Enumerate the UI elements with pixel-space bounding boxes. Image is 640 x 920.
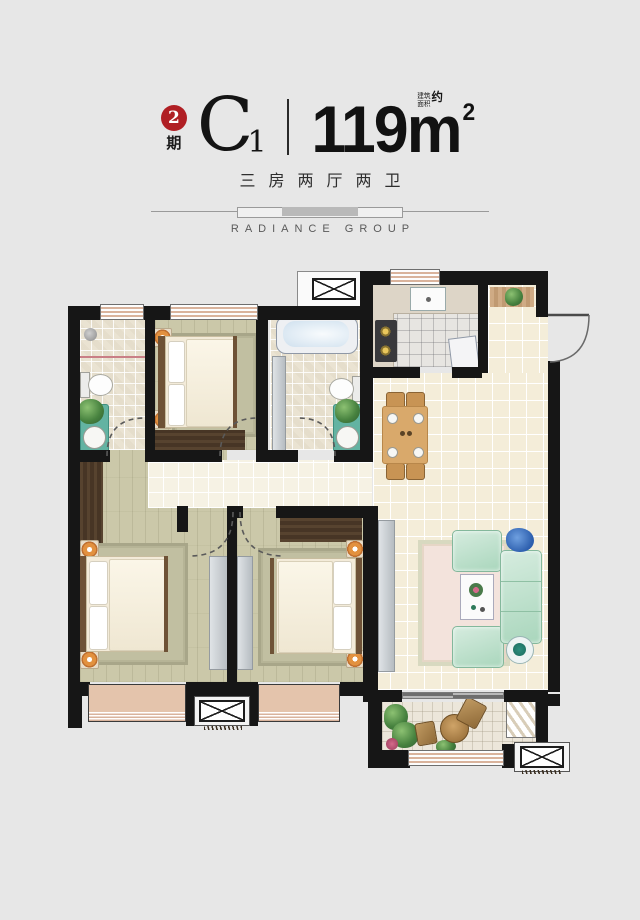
wall: [256, 450, 270, 462]
floorplan: [0, 0, 640, 920]
wall: [227, 506, 237, 692]
flower-icon: [386, 738, 398, 750]
bed3-pillow: [333, 561, 352, 605]
wall: [256, 312, 268, 452]
plate-icon: [413, 447, 424, 458]
sink2: [336, 426, 359, 449]
bed2-footboard: [233, 336, 237, 428]
plate-icon: [413, 413, 424, 424]
wall: [478, 285, 488, 373]
nightstand-lamp-icon: [80, 650, 99, 669]
balcony-cabinet: [506, 698, 536, 738]
wall: [276, 506, 372, 518]
toilet1-bowl: [88, 374, 113, 396]
window: [100, 304, 144, 320]
table-centerpiece: [400, 431, 405, 436]
wall: [548, 361, 560, 692]
hatch-marks: [522, 770, 562, 774]
wall: [145, 312, 155, 452]
bath2-cabinet: [272, 356, 286, 452]
bedroom2-dresser: [155, 430, 245, 450]
sofa-cushion-seam: [501, 611, 541, 612]
armchair: [452, 530, 502, 572]
living-tv-cabinet: [378, 520, 395, 672]
wall: [536, 694, 560, 706]
floorplan-page: { "header": { "phase_number": "2", "phas…: [0, 0, 640, 920]
bathtub: [276, 316, 358, 354]
ac-platform-x-icon: [520, 746, 564, 768]
master-tv-cabinet: [209, 556, 229, 670]
plate-icon: [387, 447, 398, 458]
sliding-door: [402, 692, 504, 699]
sofa-cushion-seam: [501, 581, 541, 582]
ac-platform-x-icon: [199, 700, 245, 722]
nightstand-lamp-icon: [346, 540, 364, 558]
cup-icon: [480, 607, 485, 612]
dining-table: [382, 406, 428, 464]
toilet2-bowl: [329, 378, 354, 400]
master-bed-pillow: [89, 561, 108, 605]
wall: [362, 367, 420, 378]
wall: [145, 450, 222, 462]
wall: [68, 450, 110, 462]
kitchen-sink: [410, 287, 446, 311]
bed3-footboard: [270, 558, 274, 654]
window-sill: [259, 712, 339, 721]
table-centerpiece: [407, 431, 412, 436]
window: [170, 304, 258, 320]
flowers-icon: [469, 583, 483, 597]
bay-window: [258, 684, 340, 722]
plant-icon: [513, 643, 526, 656]
plate-icon: [387, 413, 398, 424]
wall: [177, 506, 188, 532]
cup-icon: [471, 605, 476, 610]
bed3-duvet: [278, 561, 333, 653]
master-bed-duvet: [109, 559, 166, 651]
flue-x-icon: [312, 278, 356, 300]
wall: [363, 506, 378, 692]
blue-plant-icon: [506, 528, 534, 552]
window: [390, 269, 440, 285]
master-bed-footboard: [164, 556, 168, 652]
coffee-table: [460, 574, 494, 620]
shower-head-icon: [84, 328, 97, 341]
master-bed-pillow: [89, 606, 108, 650]
wall: [334, 450, 373, 462]
sofa: [500, 550, 542, 644]
hatch-marks: [204, 726, 242, 730]
bed2-pillow: [168, 384, 185, 426]
window-sill: [89, 712, 185, 721]
balcony-railing: [408, 750, 504, 766]
dining-chair: [386, 463, 405, 480]
bed2-headboard: [158, 336, 165, 428]
corridor-floor: [148, 460, 372, 508]
sliding-door-panel: [403, 693, 453, 696]
bed3-pillow: [333, 606, 352, 650]
balcony-chair: [414, 720, 438, 746]
sliding-door-panel: [453, 695, 503, 698]
bed2-duvet: [186, 339, 235, 427]
sink1: [83, 426, 106, 449]
wall: [368, 750, 410, 768]
master-wardrobe: [80, 462, 103, 544]
bed3-headboard: [356, 558, 362, 654]
wall: [452, 367, 482, 378]
bedroom3-wardrobe: [280, 516, 362, 542]
burner-icon: [379, 325, 392, 338]
burner-icon: [379, 344, 392, 357]
bay-window: [88, 684, 186, 722]
wall: [536, 271, 548, 317]
armchair: [452, 626, 504, 668]
bed2-pillow: [168, 341, 185, 383]
wall: [270, 450, 298, 462]
side-table: [506, 636, 534, 664]
bedroom3-tv-cabinet: [237, 556, 253, 670]
shower-rail: [80, 356, 145, 358]
stove: [375, 320, 397, 362]
wall: [68, 682, 82, 728]
faucet-icon: [426, 297, 431, 302]
wall: [68, 306, 80, 696]
bathtub-basin: [283, 321, 349, 347]
dining-chair: [406, 463, 425, 480]
